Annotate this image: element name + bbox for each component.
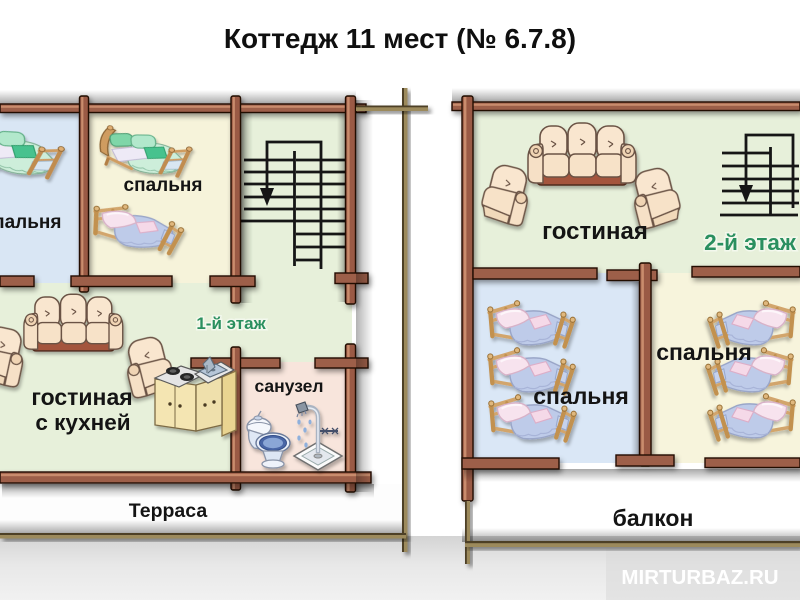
svg-text:с кухней: с кухней (35, 410, 130, 435)
svg-text:Терраса: Терраса (129, 500, 208, 522)
svg-text:спальня: спальня (124, 175, 203, 196)
svg-text:балкон: балкон (613, 505, 694, 531)
svg-text:2-й этаж: 2-й этаж (704, 230, 797, 255)
svg-text:спальня: спальня (533, 383, 629, 409)
svg-text:гостиная: гостиная (542, 218, 648, 245)
svg-text:спальня: спальня (0, 212, 61, 233)
svg-text:1-й этаж: 1-й этаж (196, 314, 266, 333)
svg-text:спальня: спальня (656, 339, 752, 365)
svg-text:санузел: санузел (254, 376, 323, 396)
svg-text:Коттедж 11 мест (№ 6.7.8): Коттедж 11 мест (№ 6.7.8) (224, 23, 576, 54)
svg-text:гостиная: гостиная (31, 384, 132, 410)
svg-text:MIRTURBAZ.RU: MIRTURBAZ.RU (621, 566, 778, 589)
